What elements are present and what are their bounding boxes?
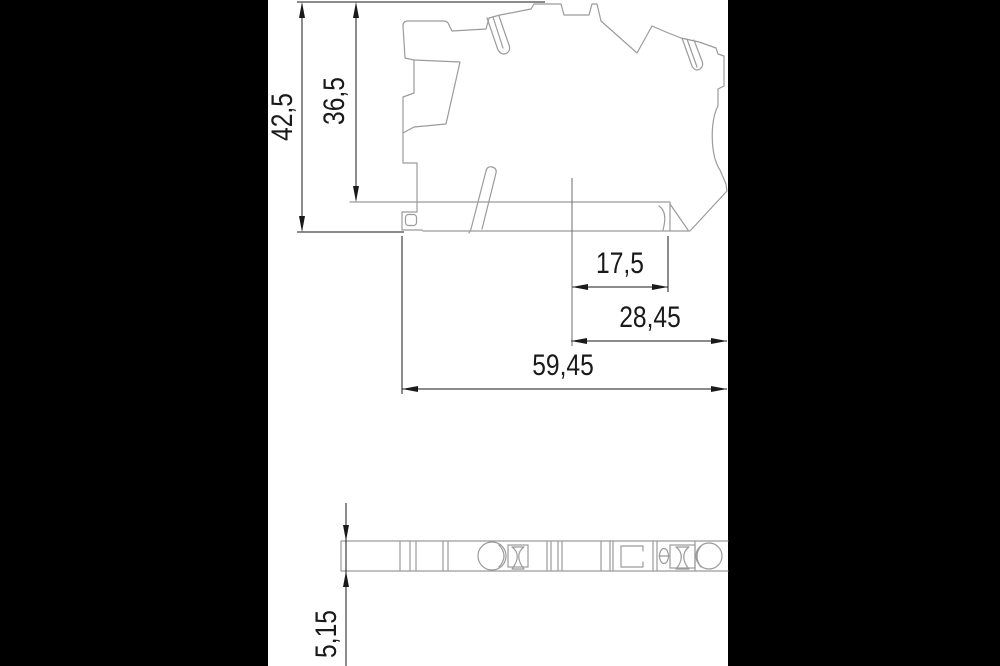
clamp-box-left xyxy=(508,545,528,567)
arrow-42-5-down xyxy=(299,216,305,232)
arrow-59-45-right xyxy=(711,386,727,392)
clamp-spring-left xyxy=(512,547,524,569)
arrow-28-45-right xyxy=(711,338,727,344)
dim-label-mid-width: 28,45 xyxy=(619,303,681,333)
arrow-17-5-right xyxy=(652,284,668,290)
left-foot-notch xyxy=(406,215,417,226)
dimension-arrows xyxy=(299,2,727,587)
dim-label-inner-width: 17,5 xyxy=(596,249,644,279)
bracket-middle xyxy=(621,546,643,567)
technical-drawing-svg xyxy=(0,0,1000,666)
screenshot-stage: 42,5 36,5 17,5 28,45 59,45 5,15 xyxy=(0,0,1000,666)
release-lever xyxy=(469,167,496,233)
profile-outer-contour xyxy=(402,4,727,231)
arrow-28-45-left xyxy=(571,338,587,344)
dim-label-total-height: 42,5 xyxy=(268,93,298,141)
profile-inner-ledge xyxy=(403,60,460,133)
clamp-box-right xyxy=(670,545,695,568)
side-view-profile xyxy=(350,4,727,233)
clamp-spring-right xyxy=(676,547,689,569)
dim-label-upper-height: 36,5 xyxy=(320,77,350,125)
arrow-5-15-down xyxy=(343,525,349,541)
arrow-59-45-left xyxy=(402,386,418,392)
right-foot-curl xyxy=(659,204,688,230)
dim-label-thickness: 5,15 xyxy=(312,610,342,658)
arrow-36-5-up xyxy=(353,2,359,18)
arrow-42-5-up xyxy=(299,2,305,18)
top-view-strip xyxy=(341,541,728,571)
wire-opening-left xyxy=(478,542,506,570)
arrow-17-5-left xyxy=(572,284,588,290)
shoulder-line xyxy=(350,202,670,231)
arrow-5-15-up xyxy=(343,571,349,587)
strip-dividers xyxy=(400,541,695,571)
dim-label-total-width: 59,45 xyxy=(532,351,594,381)
arrow-36-5-down xyxy=(353,186,359,202)
test-slot-left xyxy=(487,16,510,54)
